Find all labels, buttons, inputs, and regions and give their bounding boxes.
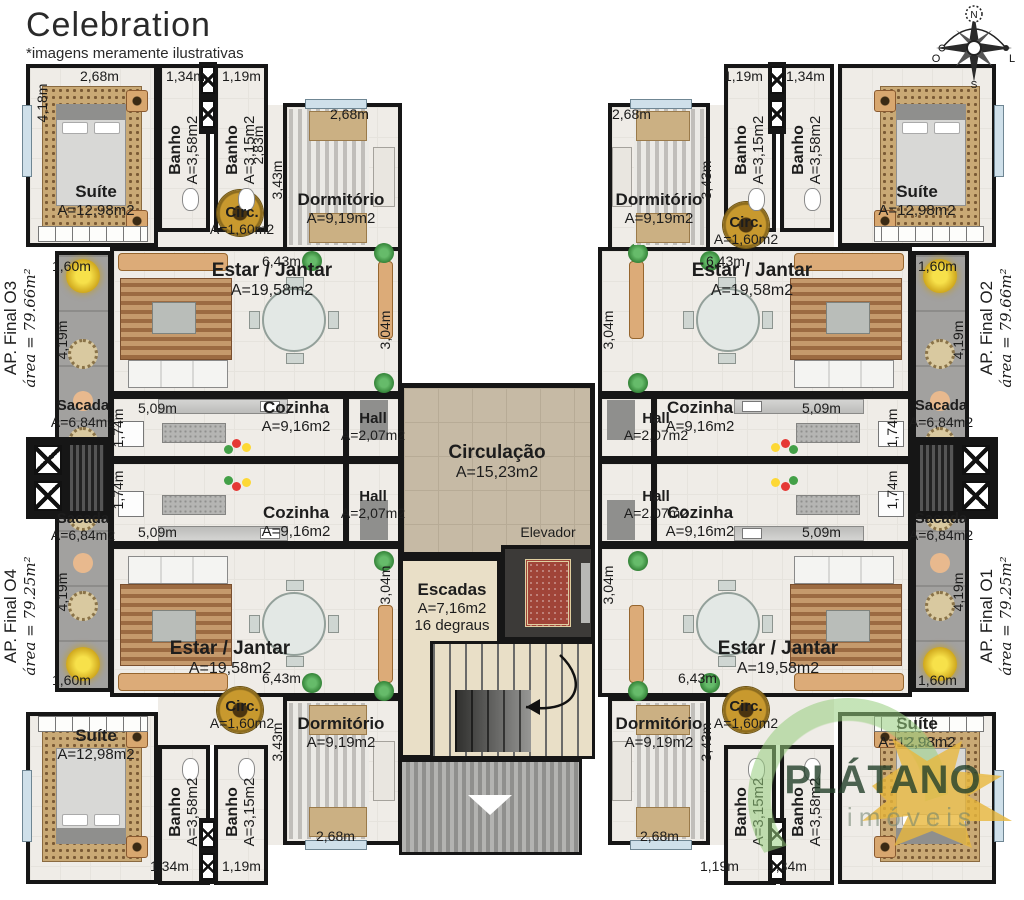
dim-label: 4,19m xyxy=(54,310,70,370)
label-banho315-o2: Banho A=3,15m2 xyxy=(728,75,772,225)
decal xyxy=(771,443,780,452)
dim-label: 1,74m xyxy=(884,398,900,458)
dim-label: 4,19m xyxy=(54,562,70,622)
elevator-cabin-rug xyxy=(525,559,571,627)
dim-label: 1,60m xyxy=(918,672,957,688)
dim-label: 2,68m xyxy=(640,828,679,844)
wicker-chair-icon xyxy=(68,339,98,369)
duct-x-icon xyxy=(770,100,784,128)
headboard xyxy=(896,104,966,120)
apartment-label-o2: AP. Final O2 área = 79.66m² xyxy=(977,248,1023,408)
chair xyxy=(286,580,304,591)
label-banho358-o2: Banho A=3,58m2 xyxy=(785,75,829,225)
dim-label: 2,68m xyxy=(316,828,355,844)
chair xyxy=(762,615,773,633)
label-suite-o3: Suíte A=12,98m2 xyxy=(26,182,166,219)
dim-label: 1,34m xyxy=(768,858,807,874)
label-hall-o2: Hall A=2,07m2 xyxy=(586,410,726,443)
stair-direction-arrow xyxy=(430,641,595,759)
page-title: Celebration *imagens meramente ilustrati… xyxy=(26,6,244,62)
floor-plan: Celebration *imagens meramente ilustrati… xyxy=(0,0,1024,900)
window xyxy=(22,105,32,177)
dim-label: 5,09m xyxy=(138,524,177,540)
headboard xyxy=(56,104,126,120)
dim-label: 3,04m xyxy=(600,300,616,360)
label-circ-o4: Circ. A=1,60m2 xyxy=(172,698,312,731)
headboard xyxy=(56,828,126,844)
island xyxy=(162,495,226,515)
label-suite-o2: Suíte A=12,98m2 xyxy=(847,182,987,219)
chair xyxy=(718,580,736,591)
window xyxy=(994,770,1004,842)
island xyxy=(162,423,226,443)
label-estar-o2: Estar / Jantar A=19,58m2 xyxy=(682,260,822,300)
dim-label: 3,43m xyxy=(698,712,714,772)
arrow-curve xyxy=(526,655,576,708)
pillow xyxy=(902,122,928,134)
dim-label: 4,19m xyxy=(950,562,966,622)
duct-x-icon xyxy=(770,821,784,848)
dim-label: 1,19m xyxy=(724,68,763,84)
compass-west-label: O xyxy=(932,53,941,65)
shaft-hatch xyxy=(70,445,104,511)
dim-label: 1,34m xyxy=(150,858,189,874)
dim-label: 4,19m xyxy=(950,310,966,370)
shaft-x-icon xyxy=(34,481,62,511)
label-circ-o3: Circ. A=1,60m2 xyxy=(172,204,312,237)
dim-label: 1,34m xyxy=(786,68,825,84)
dim-label: 2,83m xyxy=(250,115,266,175)
label-suite-o4: Suíte A=12,98m2 xyxy=(26,726,166,763)
plant-icon xyxy=(628,551,648,571)
dim-label: 3,43m xyxy=(269,150,285,210)
chair xyxy=(718,353,736,364)
dim-label: 4,18m xyxy=(34,73,50,133)
label-elevador: Elevador xyxy=(478,524,618,540)
dim-label: 2,68m xyxy=(330,106,369,122)
coffee-table xyxy=(826,302,870,334)
dim-label: 5,09m xyxy=(802,524,841,540)
label-escadas: Escadas A=7,16m2 16 degraus xyxy=(392,580,512,634)
plant-icon xyxy=(302,673,322,693)
window xyxy=(994,105,1004,177)
side-shaft-left xyxy=(26,437,112,519)
wardrobe xyxy=(874,226,984,242)
disclaimer-text: *imagens meramente ilustrativas xyxy=(26,45,244,62)
apartment-label-o3: AP. Final O3 área = 79.66m² xyxy=(1,248,47,408)
suite-furniture-o2 xyxy=(838,64,996,247)
sofa xyxy=(128,360,228,388)
chair xyxy=(328,615,339,633)
dim-label: 3,04m xyxy=(600,555,616,615)
compass-rose: N O L S xyxy=(928,2,1020,88)
dim-label: 3,43m xyxy=(269,712,285,772)
dim-label: 1,19m xyxy=(700,858,739,874)
window xyxy=(22,770,32,842)
dim-label: 2,68m xyxy=(80,68,119,84)
compass-south-label: S xyxy=(971,80,978,88)
arrow-head xyxy=(526,699,540,715)
pillow xyxy=(94,122,120,134)
dim-label: 5,09m xyxy=(138,400,177,416)
dim-label: 3,43m xyxy=(698,150,714,210)
dim-label: 1,74m xyxy=(110,398,126,458)
nightstand xyxy=(126,836,148,858)
shaft-hatch xyxy=(920,445,954,511)
island xyxy=(796,495,860,515)
chair xyxy=(683,311,694,329)
dim-label: 6,43m xyxy=(262,670,301,686)
dim-label: 1,19m xyxy=(222,858,261,874)
pillow xyxy=(934,122,960,134)
chair xyxy=(286,353,304,364)
compass-hub xyxy=(967,41,981,55)
label-banho358-o3: Banho A=3,58m2 xyxy=(162,75,206,225)
coffee-table xyxy=(152,302,196,334)
decal xyxy=(789,445,798,454)
decal xyxy=(232,439,241,448)
elevator-door xyxy=(581,563,590,623)
side-table-icon xyxy=(73,553,93,573)
label-hall-o1: Hall A=2,07m2 xyxy=(586,488,726,521)
label-circulacao: Circulação A=15,23m2 xyxy=(407,442,587,482)
dim-label: 1,60m xyxy=(52,258,91,274)
dim-label: 6,43m xyxy=(678,670,717,686)
dim-label: 1,60m xyxy=(918,258,957,274)
dim-label: 1,60m xyxy=(52,672,91,688)
label-circ-o2: Circ. A=1,60m2 xyxy=(676,214,816,247)
plant-icon xyxy=(374,373,394,393)
decal xyxy=(242,478,251,487)
shaft-x-icon xyxy=(34,445,62,475)
decal xyxy=(224,476,233,485)
decal xyxy=(242,443,251,452)
label-estar-o1: Estar / Jantar A=19,58m2 xyxy=(708,638,848,678)
shaft-x-icon xyxy=(962,481,990,511)
dim-label: 1,74m xyxy=(884,460,900,520)
nightstand xyxy=(874,836,896,858)
elevator-shaft xyxy=(501,545,595,641)
project-name: Celebration xyxy=(26,6,244,45)
label-hall-o3: Hall A=2,07m2 xyxy=(303,410,443,443)
sofa xyxy=(128,556,228,584)
compass-east-label: L xyxy=(1009,53,1015,65)
buffet xyxy=(629,605,644,683)
compass-north-label: N xyxy=(970,10,977,21)
wicker-chair-icon xyxy=(68,591,98,621)
chair xyxy=(683,615,694,633)
apartment-label-o4: AP. Final O4 área = 79.25m² xyxy=(1,536,47,696)
shaft-x-icon xyxy=(962,445,990,475)
sofa xyxy=(794,556,894,584)
decal xyxy=(232,482,241,491)
wardrobe xyxy=(38,226,148,242)
entrance-marker xyxy=(468,795,512,815)
dim-label: 2,68m xyxy=(612,106,651,122)
headboard xyxy=(896,828,966,844)
chair xyxy=(249,311,260,329)
dim-label: 1,74m xyxy=(110,460,126,520)
pillow xyxy=(902,814,928,826)
label-circ-o1: Circ. A=1,60m2 xyxy=(676,698,816,731)
pillow xyxy=(94,814,120,826)
side-table-icon xyxy=(930,553,950,573)
decal xyxy=(224,445,233,454)
decal xyxy=(781,482,790,491)
chair xyxy=(328,311,339,329)
buffet xyxy=(629,261,644,339)
label-hall-o4: Hall A=2,07m2 xyxy=(303,488,443,521)
buffet xyxy=(378,605,393,683)
plant-icon xyxy=(628,373,648,393)
side-shaft-right xyxy=(912,437,998,519)
dim-label: 3,04m xyxy=(377,555,393,615)
dim-label: 1,19m xyxy=(222,68,261,84)
dim-label: 1,34m xyxy=(166,68,205,84)
nightstand xyxy=(874,90,896,112)
chair xyxy=(249,615,260,633)
apartment-label-o1: AP. Final O1 área = 79.25m² xyxy=(977,536,1023,696)
dim-label: 6,43m xyxy=(262,253,301,269)
pillow xyxy=(62,122,88,134)
dim-label: 3,04m xyxy=(377,300,393,360)
sofa xyxy=(794,360,894,388)
decal xyxy=(771,478,780,487)
chair xyxy=(762,311,773,329)
duct-x-icon xyxy=(770,66,784,94)
decal xyxy=(789,476,798,485)
label-suite-o1: Suíte A=12,98m2 xyxy=(847,714,987,751)
pillow xyxy=(934,814,960,826)
pillow xyxy=(62,814,88,826)
dim-label: 5,09m xyxy=(802,400,841,416)
island xyxy=(796,423,860,443)
dim-label: 6,43m xyxy=(706,253,745,269)
nightstand xyxy=(126,90,148,112)
